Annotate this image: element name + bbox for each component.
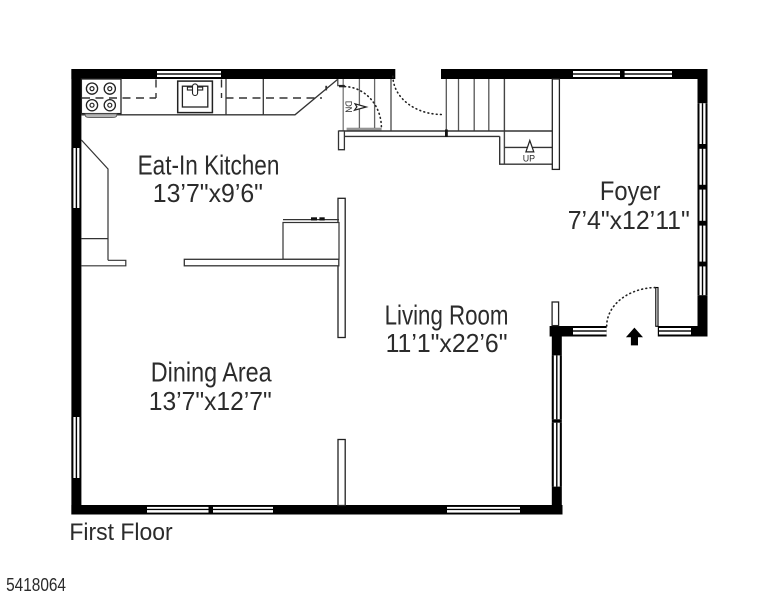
svg-text:Dining Area: Dining Area [151,357,272,388]
svg-text:11’1"x22’6": 11’1"x22’6" [386,328,508,358]
svg-text:Living Room: Living Room [385,300,509,331]
svg-text:13’7"x12’7": 13’7"x12’7" [149,386,272,416]
svg-text:DN: DN [344,101,354,113]
svg-text:7’4"x12’11": 7’4"x12’11" [568,205,690,235]
svg-text:Foyer: Foyer [600,176,661,206]
svg-text:5418064: 5418064 [6,574,66,594]
svg-text:13’7"x9’6": 13’7"x9’6" [153,178,263,208]
svg-text:First Floor: First Floor [69,519,172,546]
svg-text:Eat-In Kitchen: Eat-In Kitchen [138,149,280,180]
svg-text:UP: UP [523,153,535,163]
